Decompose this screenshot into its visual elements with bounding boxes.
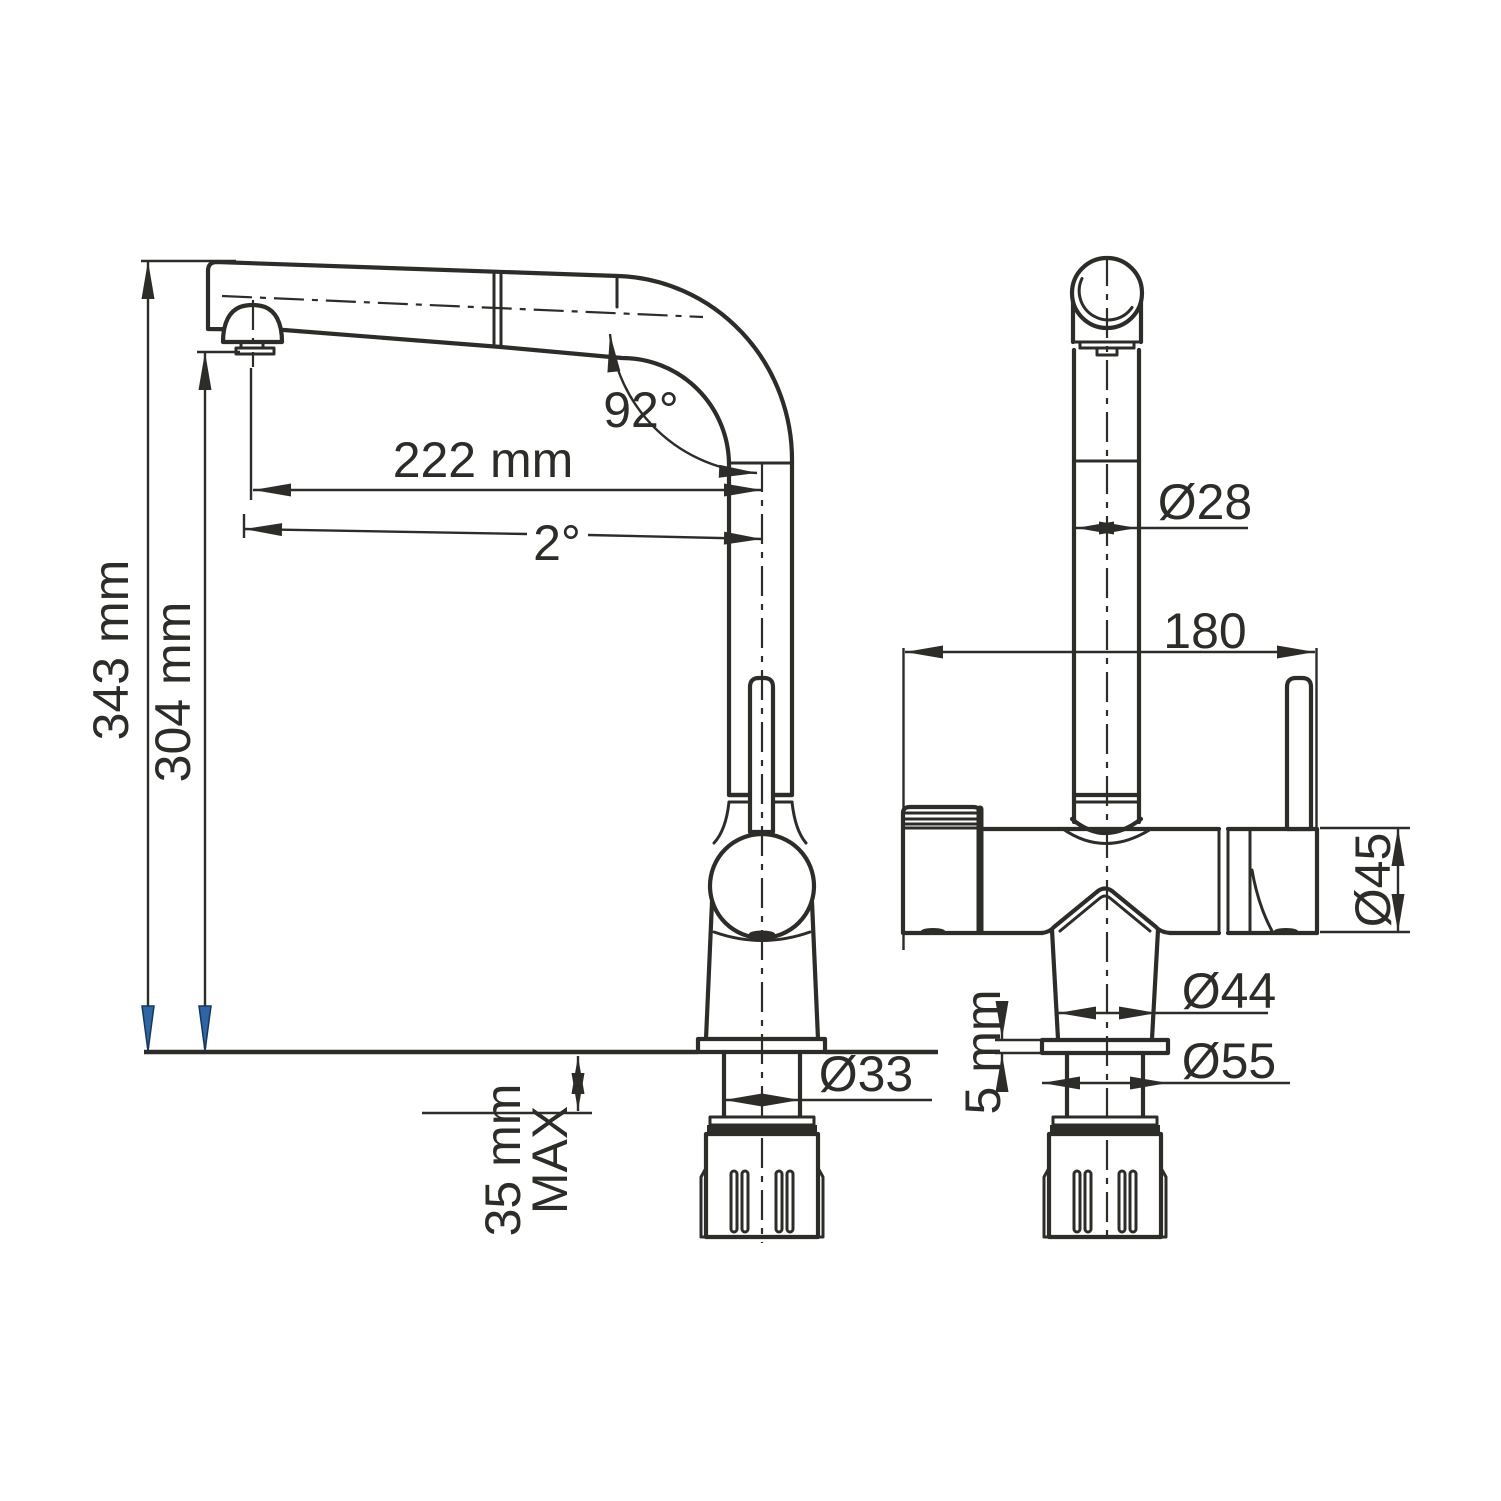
nut-washer (710, 1117, 814, 1125)
label-flange-diameter: Ø55 (1182, 1033, 1277, 1089)
label-flange-height: 5 mm (955, 990, 1011, 1115)
drawing-sheet: 343 mm 304 mm 222 mm 2° 92° Ø28 180 Ø45 … (0, 0, 1501, 1501)
label-handle-diameter: Ø45 (1345, 833, 1401, 928)
nut-slot (1074, 1171, 1080, 1232)
base-flange (1042, 1040, 1168, 1053)
label-deck-max-2: MAX (522, 1106, 578, 1214)
nut-slot (1119, 1171, 1125, 1232)
shade-mark (1274, 928, 1298, 934)
nut-slot (1085, 1171, 1091, 1232)
handle-lever (750, 678, 773, 832)
mounting-nut (1049, 1134, 1161, 1237)
nut-slot (1130, 1171, 1136, 1232)
body-end-cap (903, 807, 980, 933)
nut-slot (776, 1171, 782, 1232)
nut-slot (787, 1171, 793, 1232)
label-body-width: 180 (1163, 603, 1246, 659)
nut-slot (742, 1171, 748, 1232)
label-spout-height: 304 mm (145, 602, 201, 783)
aerator-lip (236, 348, 274, 354)
label-shank-diameter: Ø33 (819, 1046, 914, 1102)
label-spout-tilt: 2° (533, 515, 581, 571)
label-column-diameter: Ø28 (1158, 474, 1253, 530)
handle-lever (1287, 678, 1311, 829)
shade-mark (921, 928, 945, 934)
label-total-height: 343 mm (83, 560, 139, 741)
nut-washer (1053, 1117, 1157, 1125)
label-base-diameter: Ø44 (1182, 963, 1277, 1019)
label-spout-reach: 222 mm (393, 432, 574, 488)
technical-drawing: 343 mm 304 mm 222 mm 2° 92° Ø28 180 Ø45 … (0, 0, 1501, 1501)
label-spout-angle: 92° (603, 382, 679, 438)
nut-slot (731, 1171, 737, 1232)
